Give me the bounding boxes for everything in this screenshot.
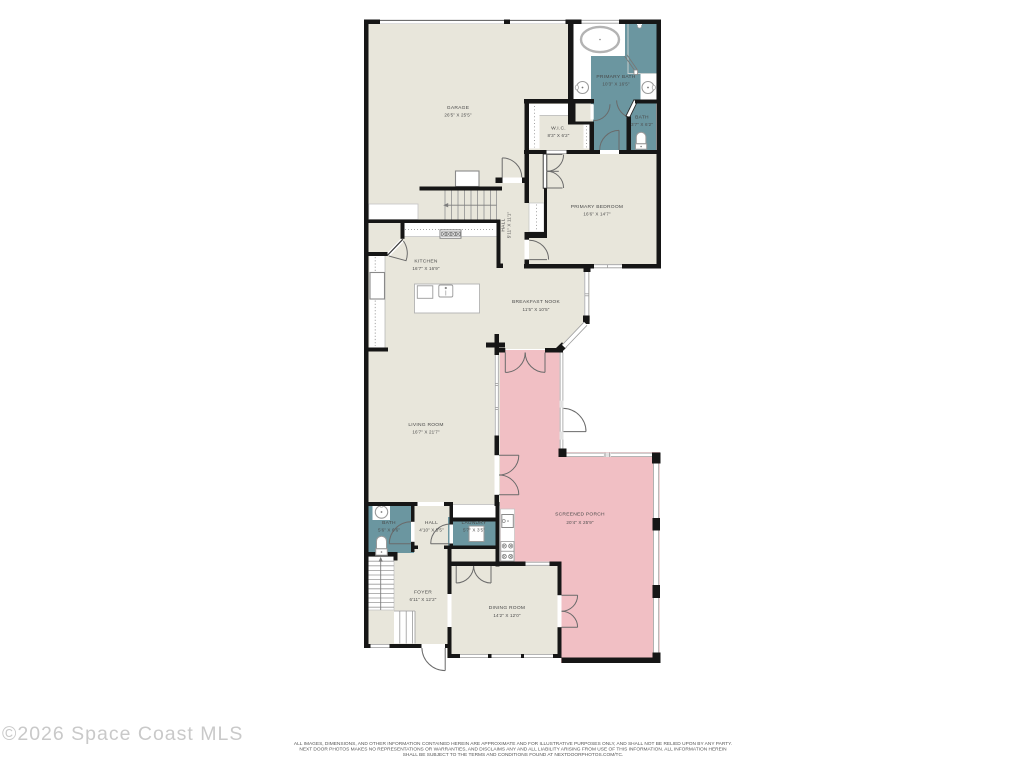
svg-text:11'5" X 10'5": 11'5" X 10'5" [523,307,550,312]
svg-text:26'5" X 25'5": 26'5" X 25'5" [444,113,472,118]
svg-text:8'3" X 6'2": 8'3" X 6'2" [548,133,570,138]
svg-text:BREAKFAST NOOK: BREAKFAST NOOK [512,299,560,305]
svg-text:©2026 Space Coast MLS: ©2026 Space Coast MLS [2,723,243,745]
svg-text:16'6" X 14'7": 16'6" X 14'7" [583,212,611,217]
svg-text:KITCHEN: KITCHEN [414,259,437,265]
svg-text:14'2" X 12'0": 14'2" X 12'0" [493,613,521,618]
svg-text:FOYER: FOYER [414,590,432,596]
svg-text:W.I.C.: W.I.C. [551,126,566,132]
svg-text:6'11" X 12'2": 6'11" X 12'2" [410,597,437,602]
svg-text:SHALL BE SUBJECT TO THE TERMS: SHALL BE SUBJECT TO THE TERMS AND CONDIT… [403,752,624,758]
svg-text:5'11" X 11'1": 5'11" X 11'1" [507,211,512,238]
svg-text:LIVING ROOM: LIVING ROOM [408,422,443,428]
svg-text:5'6" X 6'6": 5'6" X 6'6" [378,528,400,533]
svg-text:NEXT DOOR PHOTOS MAKES NO REPR: NEXT DOOR PHOTOS MAKES NO REPRESENTATION… [299,747,727,753]
svg-text:SCREENED PORCH: SCREENED PORCH [555,512,605,518]
svg-text:PRIMARY BEDROOM: PRIMARY BEDROOM [571,204,623,210]
svg-text:5'7" X 3'5": 5'7" X 3'5" [463,528,485,533]
svg-text:DINING ROOM: DINING ROOM [489,605,525,611]
svg-text:PRIMARY BATH: PRIMARY BATH [596,74,635,80]
svg-text:4'10" X 5'5": 4'10" X 5'5" [419,528,444,533]
svg-text:GARAGE: GARAGE [447,105,470,111]
svg-text:LAUNDRY: LAUNDRY [461,520,487,526]
svg-text:16'7" X 16'9": 16'7" X 16'9" [412,266,440,271]
svg-text:20'4" X 25'9": 20'4" X 25'9" [566,520,594,525]
svg-text:ALL IMAGES, DIMENSIONS, AND OT: ALL IMAGES, DIMENSIONS, AND OTHER INFORM… [294,741,732,747]
svg-text:3'7" X 6'2": 3'7" X 6'2" [631,122,653,127]
svg-text:10'3" X 16'5": 10'3" X 16'5" [602,82,630,87]
svg-text:BATH: BATH [382,520,396,526]
svg-text:BATH: BATH [635,115,649,121]
svg-text:16'7" X 21'7": 16'7" X 21'7" [412,430,440,435]
svg-text:HALL: HALL [425,520,438,526]
